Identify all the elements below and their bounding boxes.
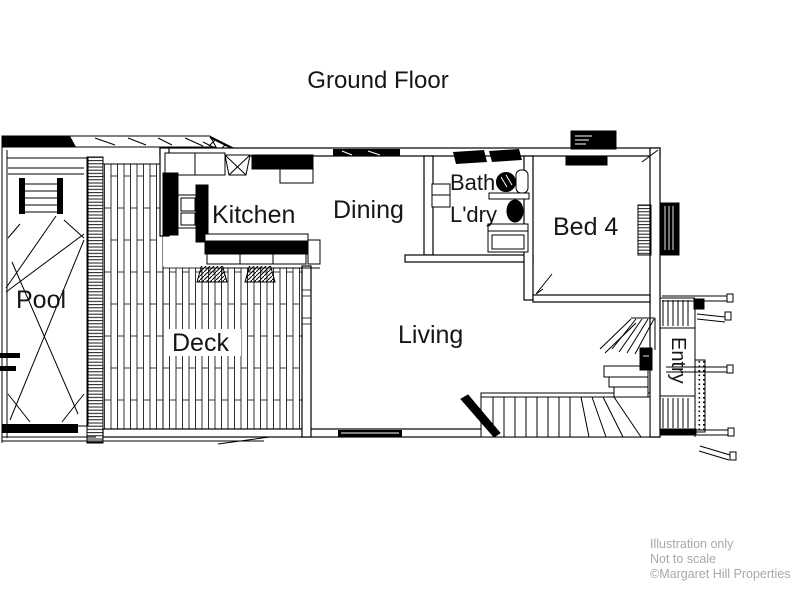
stool-icon: [197, 264, 227, 282]
bed4-bottom-wall: [533, 295, 650, 302]
winder-step: [609, 377, 648, 387]
deck-label: Deck: [172, 329, 229, 357]
rail-post: [727, 294, 733, 302]
dining-label: Dining: [333, 196, 404, 224]
page-title: Ground Floor: [307, 67, 448, 94]
ldry-label: L'dry: [450, 202, 497, 227]
bed-head: [566, 156, 607, 165]
bath-label: Bath: [450, 170, 495, 195]
island-bench: [205, 234, 308, 241]
floor-plan-page: Pool Deck: [0, 0, 800, 600]
kitchen-bench: [252, 155, 313, 169]
bath-window: [453, 150, 487, 164]
pantry: [163, 173, 178, 235]
footer-line-2: Not to scale: [650, 552, 716, 566]
rail-post: [727, 365, 733, 373]
entry-screen: [695, 360, 705, 432]
rail-post: [725, 312, 731, 320]
pool-ladder-icon: [0, 353, 20, 358]
toilet-icon: [507, 200, 523, 222]
bed4-label: Bed 4: [553, 213, 618, 241]
ac-unit-icon: [661, 203, 679, 255]
living-label: Living: [398, 321, 463, 349]
living-left-wall: [302, 266, 311, 437]
stair-newel: [640, 348, 652, 370]
footer-line-1: Illustration only: [650, 537, 734, 551]
floor-plan-canvas: Pool Deck: [0, 0, 800, 600]
rail-post: [730, 452, 736, 460]
bath-window: [489, 149, 522, 162]
pool-label: Pool: [16, 286, 66, 314]
entry-label: Entry: [667, 337, 689, 384]
rail-post: [728, 428, 734, 436]
right-wall: [650, 148, 660, 437]
dining-window: [333, 149, 400, 156]
bath-bottom-wall: [405, 255, 533, 262]
counter-return: [196, 185, 208, 242]
winder-step: [614, 387, 648, 397]
pool-fence: [87, 157, 103, 443]
kitchen-label: Kitchen: [212, 201, 295, 229]
bed4-window: [638, 205, 651, 255]
stool-icon: [245, 264, 275, 282]
tub-icon: [516, 170, 528, 193]
footer-line-3: ©Margaret Hill Properties: [650, 567, 791, 581]
